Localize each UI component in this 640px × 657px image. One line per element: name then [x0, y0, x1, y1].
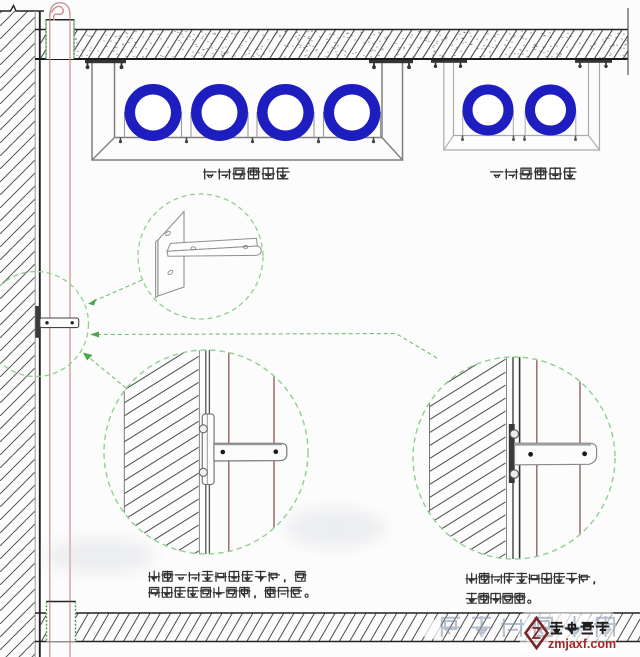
svg-text:zmjaxf.com: zmjaxf.com — [548, 637, 616, 651]
